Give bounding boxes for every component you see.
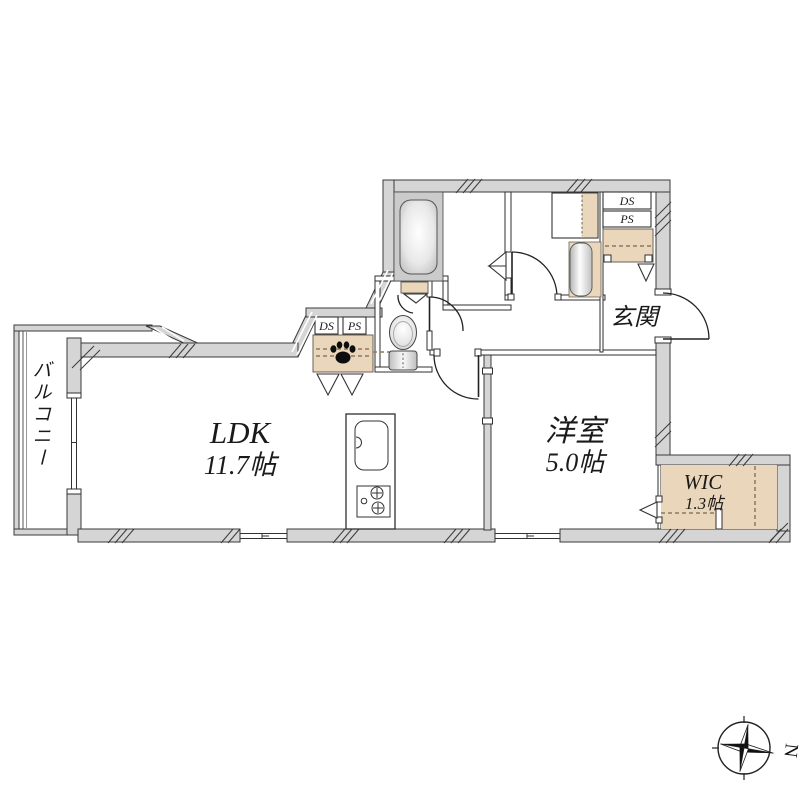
compass-star	[716, 720, 778, 777]
washroom-door-hinge-1	[508, 294, 514, 300]
ldk-door-hinge-1	[434, 349, 440, 356]
closet-folding-door-2	[341, 374, 363, 395]
divider-notch-1	[483, 368, 493, 374]
toilet-shelf-door-mark	[404, 294, 427, 303]
shoe-cabinet-door-mark	[638, 264, 654, 281]
wic-door-cap-1	[656, 496, 662, 502]
bath-folding-door-upper	[489, 252, 506, 266]
entrance-frame-top	[655, 289, 671, 295]
washbasin-bowl	[570, 243, 592, 296]
wall-wic-right	[777, 465, 790, 531]
floorplan-canvas: バルコニー LDK 11.7帖 洋室 5.0帖 WIC 1.3帖 玄関 DS P…	[0, 0, 800, 800]
bathtub	[400, 200, 437, 274]
balcony-window	[67, 393, 81, 494]
balcony-window-gap	[67, 396, 81, 491]
wall-bath-left	[383, 180, 394, 277]
washing-machine-pan-shade	[582, 194, 597, 237]
divider-notch-2	[483, 418, 493, 424]
wall-wic-top	[656, 455, 790, 465]
ps-mid-label: PS	[347, 319, 361, 333]
ldk-size-label: 11.7帖	[204, 450, 280, 480]
washroom-door-hinge-2	[555, 294, 561, 300]
ldk-window	[240, 529, 287, 542]
balcony-label: バルコニー	[29, 360, 51, 470]
ldk-door-arc	[434, 355, 479, 399]
ps-top-label: PS	[619, 212, 633, 226]
washroom-door-arc	[512, 252, 557, 297]
ldk-label: LDK	[209, 415, 273, 450]
ds-top-label: DS	[619, 194, 635, 208]
shoe-cabinet-foot-right	[645, 255, 652, 262]
toilet-right-wall-b	[427, 331, 432, 350]
closet-folding-door-1	[317, 374, 339, 395]
entrance-door-arc	[663, 293, 709, 339]
wic-label: WIC	[684, 470, 723, 494]
wall-bottom-1	[78, 529, 240, 542]
wall-room-divider	[484, 350, 491, 530]
wall-left-lower	[67, 490, 81, 535]
wall-right-lower	[656, 337, 670, 455]
washroom-left-wall-a	[505, 192, 511, 252]
ds-mid-label: DS	[318, 319, 334, 333]
floorplan-drawing: バルコニー LDK 11.7帖 洋室 5.0帖 WIC 1.3帖 玄関 DS P…	[0, 0, 800, 800]
wall-right-upper	[656, 192, 670, 295]
entrance-label: 玄関	[610, 304, 661, 331]
balcony-wall-top	[14, 325, 152, 331]
compass-rose: N	[712, 716, 800, 780]
hall-western-wall	[478, 350, 656, 355]
shoe-cabinet-foot-left	[604, 255, 611, 262]
entrance-frame-bottom	[655, 337, 671, 343]
wic-folding-door	[640, 502, 657, 518]
wall-left-upper	[67, 338, 81, 397]
wic-size-label: 1.3帖	[685, 494, 726, 513]
toilet-door-arc	[430, 297, 464, 331]
compass-north-label: N	[779, 742, 800, 758]
ldk-door-hinge-2	[475, 349, 481, 356]
wall-top	[383, 180, 670, 192]
western-room-size-label: 5.0帖	[546, 448, 609, 477]
wic-left-wall-a	[658, 465, 661, 498]
balcony-wall-left	[14, 325, 19, 535]
western-room-window	[495, 529, 560, 542]
western-room-label: 洋室	[545, 415, 609, 448]
toilet-shelf	[401, 282, 428, 293]
bath-folding-door-lower	[489, 266, 506, 280]
